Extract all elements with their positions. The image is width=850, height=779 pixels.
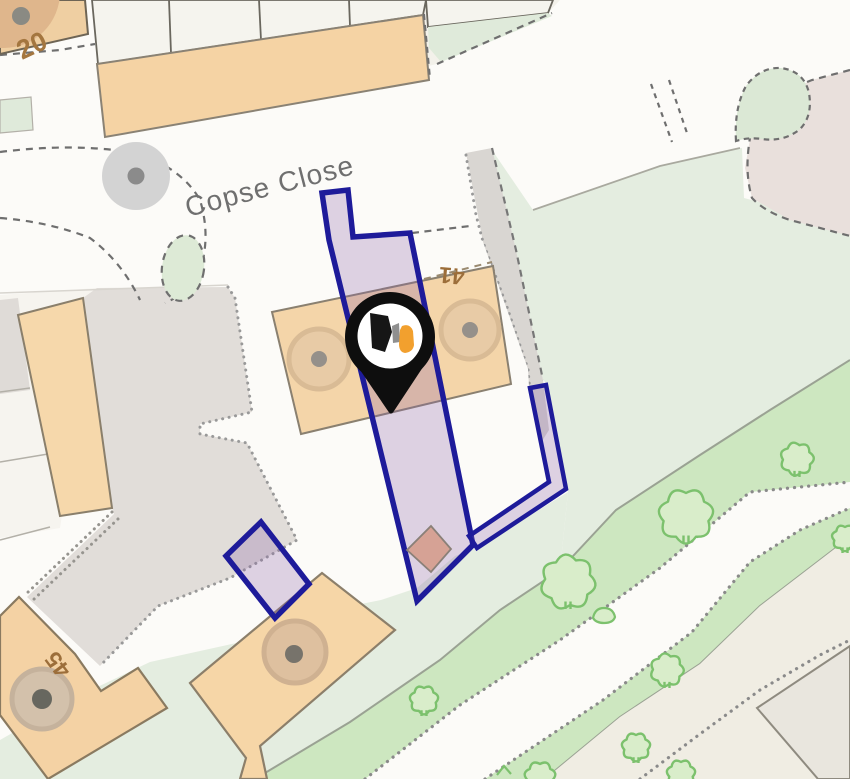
svg-text:41: 41 [438,262,466,290]
